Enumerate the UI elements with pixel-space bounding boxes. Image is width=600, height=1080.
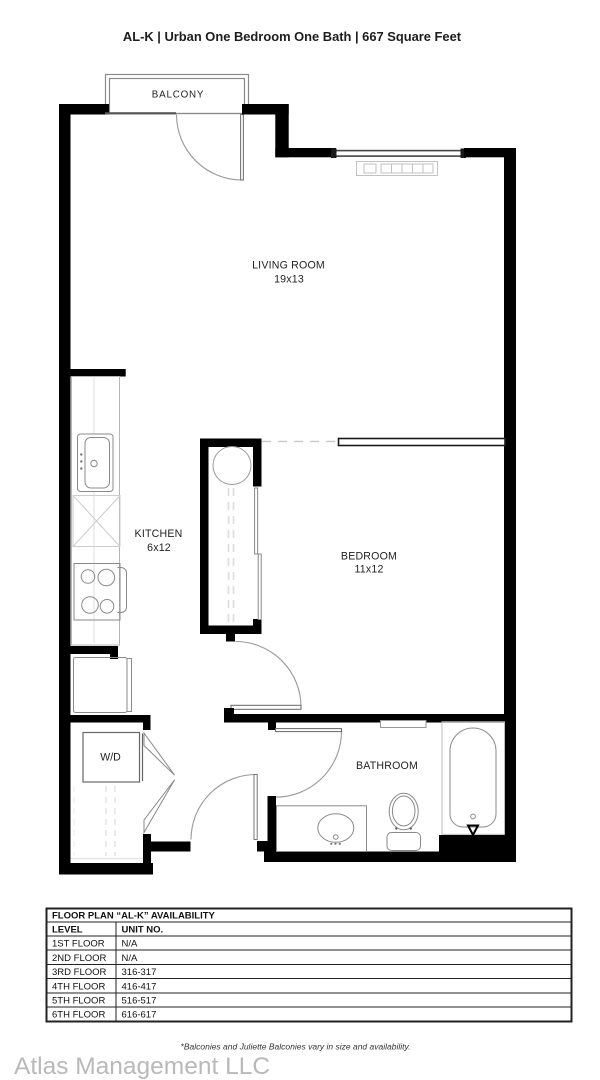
svg-text:*Balconies and Juliette Balcon: *Balconies and Juliette Balconies vary i… [181, 1042, 411, 1052]
svg-text:4TH FLOOR: 4TH FLOOR [52, 981, 105, 992]
svg-text:11x12: 11x12 [354, 564, 383, 576]
svg-text:6x12: 6x12 [147, 542, 171, 554]
svg-text:516-517: 516-517 [122, 996, 157, 1007]
svg-text:BATHROOM: BATHROOM [356, 760, 418, 772]
svg-text:BALCONY: BALCONY [152, 90, 204, 101]
svg-text:Atlas Management LLC: Atlas Management LLC [14, 1053, 270, 1080]
svg-text:3RD FLOOR: 3RD FLOOR [52, 967, 107, 978]
svg-text:6TH FLOOR: 6TH FLOOR [52, 1010, 105, 1021]
svg-text:FLOOR PLAN “AL-K” AVAILABILITY: FLOOR PLAN “AL-K” AVAILABILITY [52, 911, 216, 922]
svg-text:LIVING ROOM: LIVING ROOM [252, 260, 325, 272]
svg-text:N/A: N/A [122, 953, 139, 964]
svg-text:W/D: W/D [100, 752, 121, 764]
svg-text:19x13: 19x13 [274, 274, 304, 286]
svg-text:AL-K | Urban One Bedroom One B: AL-K | Urban One Bedroom One Bath | 667 … [123, 29, 462, 44]
svg-text:5TH FLOOR: 5TH FLOOR [52, 996, 105, 1007]
svg-text:616-617: 616-617 [122, 1010, 157, 1021]
svg-text:BEDROOM: BEDROOM [341, 551, 397, 563]
svg-text:1ST FLOOR: 1ST FLOOR [52, 939, 105, 950]
svg-text:KITCHEN: KITCHEN [135, 528, 183, 540]
svg-text:316-317: 316-317 [122, 967, 157, 978]
svg-text:N/A: N/A [122, 939, 139, 950]
svg-text:LEVEL: LEVEL [52, 925, 83, 936]
svg-text:UNIT NO.: UNIT NO. [122, 925, 164, 936]
svg-text:416-417: 416-417 [122, 981, 157, 992]
svg-text:2ND FLOOR: 2ND FLOOR [52, 953, 107, 964]
